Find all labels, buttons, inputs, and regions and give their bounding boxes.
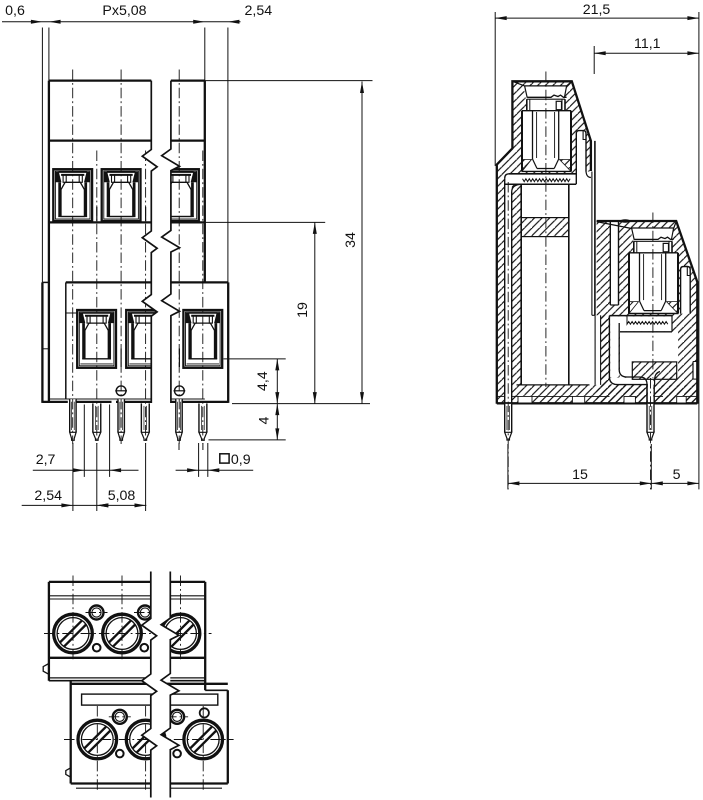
svg-text:4,4: 4,4: [255, 371, 271, 391]
svg-text:2,54: 2,54: [244, 3, 272, 19]
svg-text:11,1: 11,1: [634, 36, 661, 52]
svg-text:15: 15: [572, 467, 588, 483]
svg-text:5,08: 5,08: [108, 488, 136, 504]
svg-text:0,9: 0,9: [231, 452, 251, 468]
svg-text:0,6: 0,6: [5, 3, 25, 19]
svg-text:34: 34: [343, 232, 359, 248]
svg-text:2,7: 2,7: [36, 452, 56, 468]
svg-text:4: 4: [257, 416, 273, 424]
svg-text:19: 19: [295, 302, 311, 318]
svg-text:2,54: 2,54: [34, 488, 62, 504]
svg-text:21,5: 21,5: [583, 2, 611, 18]
svg-text:5: 5: [673, 467, 681, 483]
svg-text:Px5,08: Px5,08: [102, 3, 146, 19]
